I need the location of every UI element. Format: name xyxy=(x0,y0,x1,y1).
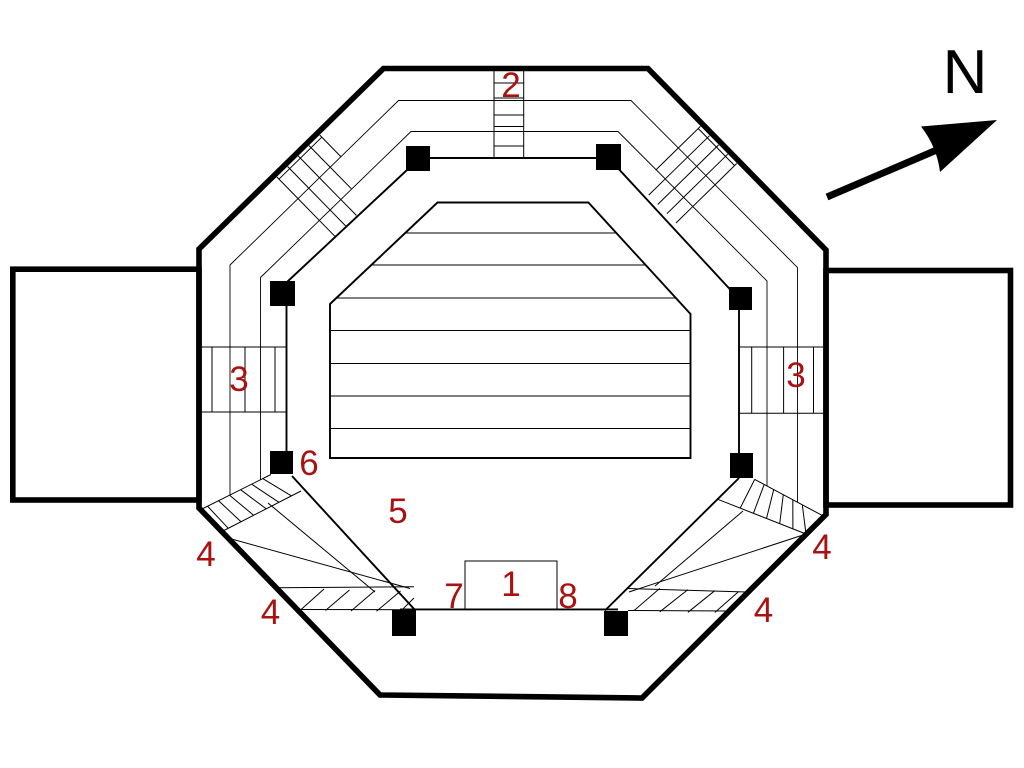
svg-text:3: 3 xyxy=(229,360,248,399)
svg-text:5: 5 xyxy=(388,492,407,531)
svg-text:4: 4 xyxy=(196,535,215,574)
svg-text:4: 4 xyxy=(812,528,831,567)
svg-text:3: 3 xyxy=(786,356,805,395)
svg-text:4: 4 xyxy=(261,593,280,632)
svg-text:8: 8 xyxy=(558,577,577,616)
svg-text:N: N xyxy=(943,38,988,107)
svg-text:6: 6 xyxy=(299,444,318,483)
svg-text:7: 7 xyxy=(444,577,463,616)
svg-text:2: 2 xyxy=(501,66,520,105)
svg-text:4: 4 xyxy=(754,591,773,630)
svg-text:1: 1 xyxy=(501,565,520,604)
